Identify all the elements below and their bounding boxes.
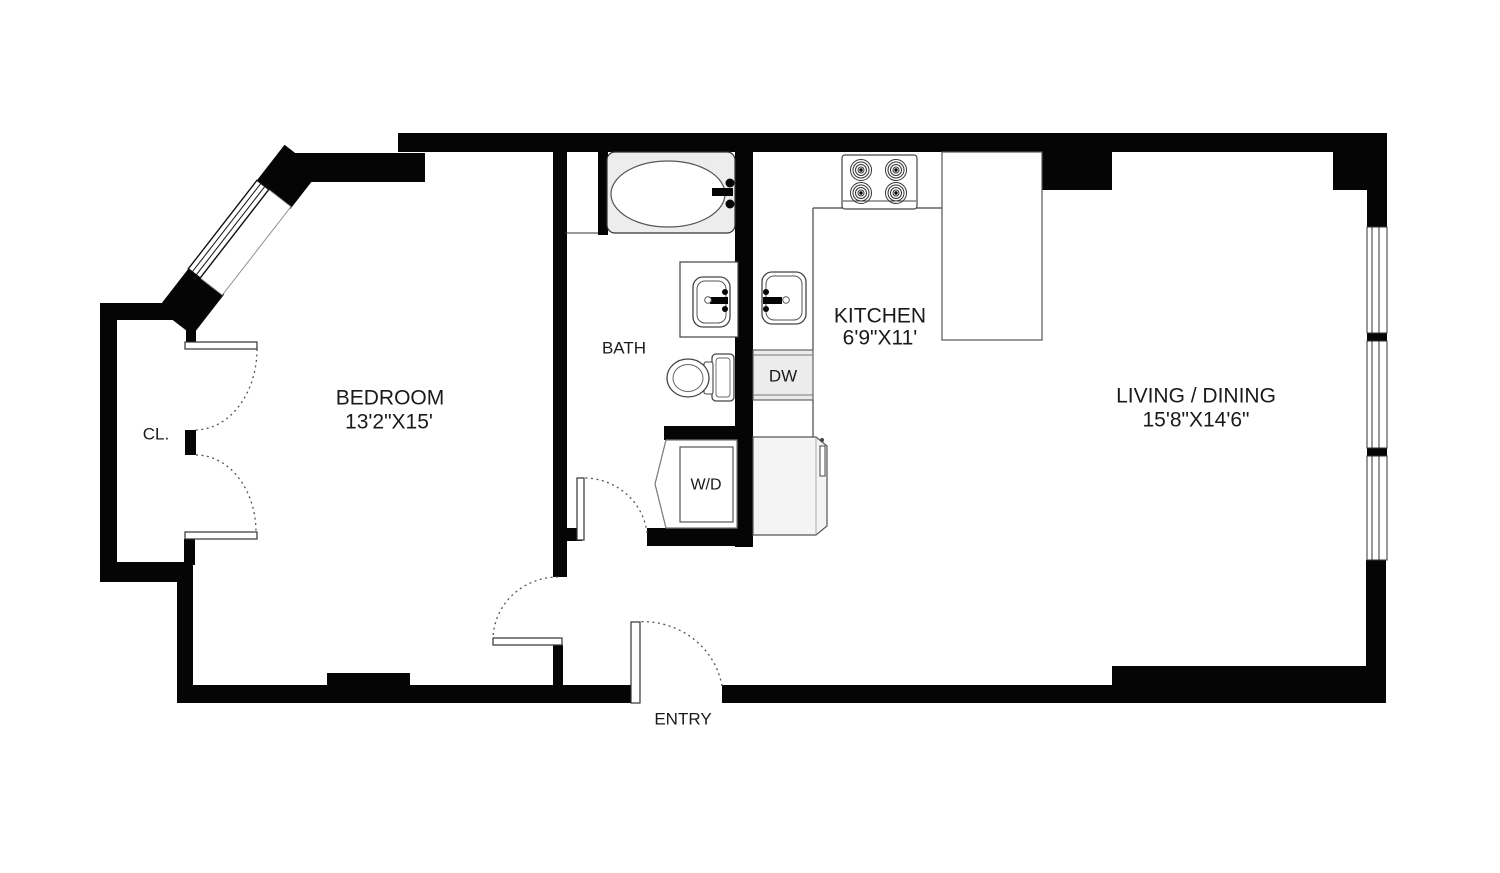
- window-icon: [1367, 456, 1387, 560]
- entry-label: ENTRY: [654, 710, 711, 729]
- bedroom-diagonal-window: [158, 145, 320, 336]
- living-room-windows: [1367, 227, 1387, 560]
- window-icon: [1367, 341, 1387, 448]
- floor-plan: W/D DW: [0, 0, 1500, 873]
- bath-door: [577, 478, 647, 540]
- washer-dryer-label: W/D: [690, 477, 721, 494]
- window-icon: [1367, 227, 1387, 333]
- closet-door-leaf: [185, 342, 257, 349]
- refrigerator-icon: [753, 437, 827, 535]
- entry-door-leaf: [631, 622, 640, 703]
- bath-sink-icon: [680, 262, 738, 337]
- kitchen-label: KITCHEN: [834, 305, 926, 328]
- bedroom-door-leaf: [493, 638, 562, 645]
- bedroom-door: [493, 577, 562, 645]
- stove-icon: [842, 155, 917, 209]
- bathtub-icon: [565, 152, 735, 233]
- living-dining-label: LIVING / DINING: [1116, 385, 1276, 408]
- bath-door-leaf: [577, 478, 584, 540]
- dishwasher-label: DW: [769, 367, 797, 386]
- closet-label: CL.: [143, 425, 169, 444]
- washer-dryer-icon: W/D: [655, 440, 737, 528]
- kitchen-dimensions: 6'9"X11': [843, 327, 918, 350]
- entry-door: [631, 622, 722, 703]
- closet-door-leaf: [185, 532, 257, 539]
- kitchen-sink-icon: [762, 272, 806, 324]
- floor-plan-page: W/D DW: [0, 0, 1500, 873]
- bedroom-dimensions: 13'2"X15': [345, 411, 433, 434]
- bedroom-label: BEDROOM: [336, 387, 445, 410]
- living-dining-dimensions: 15'8"X14'6": [1142, 409, 1249, 432]
- dishwasher-icon: DW: [753, 350, 813, 400]
- toilet-icon: [667, 354, 734, 401]
- bath-label: BATH: [602, 339, 646, 358]
